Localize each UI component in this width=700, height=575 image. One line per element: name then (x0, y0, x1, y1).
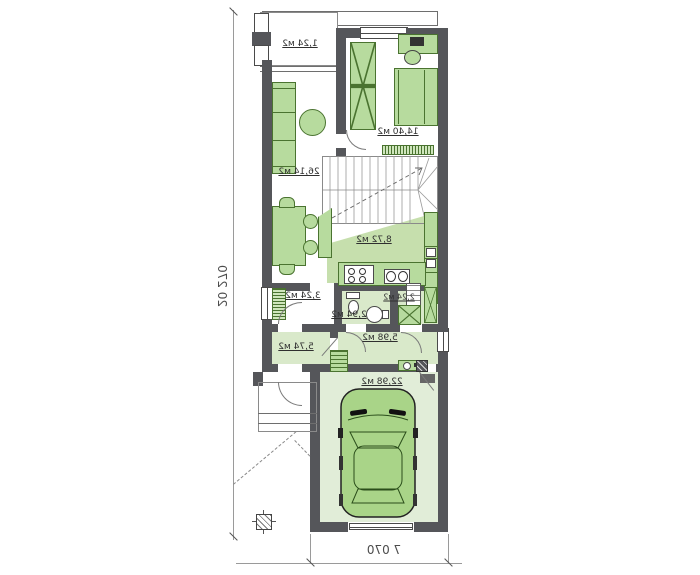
garage-door (349, 523, 413, 530)
bottom-wall (302, 364, 310, 372)
step-line (258, 413, 317, 414)
lower-wall (366, 324, 400, 332)
stove-burner (348, 276, 355, 283)
vertical-dimension-line (233, 10, 234, 540)
garage-bottom-wall (414, 522, 448, 532)
room-label-pantry: 3,24 м2 (285, 291, 320, 301)
counter-line (424, 246, 438, 247)
room-label-garage: 22,98 м2 (361, 377, 402, 387)
room-label-bedroom: 14,40 м2 (377, 127, 418, 137)
bed-line (398, 70, 399, 124)
washbasin (366, 306, 383, 323)
stove-burner (359, 276, 366, 283)
car (338, 386, 418, 520)
garage-right-wall (438, 372, 448, 532)
room-label-living: 26,14 м2 (278, 167, 319, 177)
staircase (322, 156, 438, 224)
bedroom-door-arc (346, 130, 366, 150)
toilet-tank (346, 292, 360, 299)
stove-burner (348, 268, 355, 275)
room-label-wc: 2,94 м2 (331, 310, 366, 320)
desk-chair (404, 50, 421, 65)
lower-wall (262, 324, 278, 332)
driveway-dashed-line (233, 431, 296, 484)
plot-depth-label: 20 270 (215, 265, 229, 307)
driveway-dashed-line (294, 440, 310, 457)
stove-burner (359, 268, 366, 275)
extension-line (310, 534, 311, 563)
kitchen-cabinet (318, 208, 332, 258)
laundry-wall (390, 283, 398, 324)
top-wall (336, 28, 362, 38)
porch-pillar (254, 13, 269, 34)
counter-line (424, 272, 438, 273)
coffee-table (299, 109, 326, 136)
porch-pillar (252, 32, 271, 46)
sofa (272, 82, 296, 174)
appliance (426, 248, 436, 257)
sofa-line (273, 88, 295, 89)
lower-wall (422, 324, 448, 332)
room-label-vestibule: 5,74 м2 (278, 342, 313, 352)
chimney (416, 360, 428, 372)
lower-wall (302, 324, 346, 332)
sink-bowl (386, 271, 396, 282)
washbasin-tap (382, 310, 389, 319)
survey-marker (256, 514, 272, 530)
garage-steps (330, 350, 348, 372)
boiler (403, 362, 411, 370)
appliance (426, 259, 436, 268)
room-label-porch: 1,24 м2 (282, 39, 317, 49)
room-label-kitchen: 8,72 м2 (356, 235, 391, 245)
step-line (258, 423, 317, 424)
bed (394, 68, 438, 126)
wardrobe (350, 42, 376, 130)
washing-machine (398, 305, 421, 325)
radiator (382, 145, 434, 155)
left-wall (262, 60, 272, 287)
bedroom-wall (336, 148, 346, 156)
horizontal-dimension-line (236, 563, 462, 564)
house-width-label: 7 070 (367, 543, 401, 557)
desk-lamp (410, 37, 424, 46)
dining-chair (279, 264, 295, 275)
dining-chair (279, 197, 295, 208)
extension-line (448, 534, 449, 563)
garage-top-wall (436, 364, 448, 372)
dining-chair (303, 214, 318, 229)
laundry-cabinet (424, 287, 437, 323)
sofa-line (273, 140, 295, 141)
room-label-hall: 5,98 м2 (362, 333, 397, 343)
eaves-line (437, 11, 438, 26)
bottom-wall (262, 364, 278, 372)
sink-bowl (398, 271, 408, 282)
room-label-laundry: 2,24 м2 (383, 293, 414, 302)
bed-pillow-line (424, 70, 425, 124)
dining-chair (303, 240, 318, 255)
bedroom-wall (336, 38, 346, 134)
eaves-line (338, 25, 437, 26)
dining-table (272, 206, 306, 266)
floor-plan: 20 270 7 070 (0, 0, 700, 575)
garage-bottom-wall (310, 522, 348, 532)
sofa-line (273, 112, 295, 113)
